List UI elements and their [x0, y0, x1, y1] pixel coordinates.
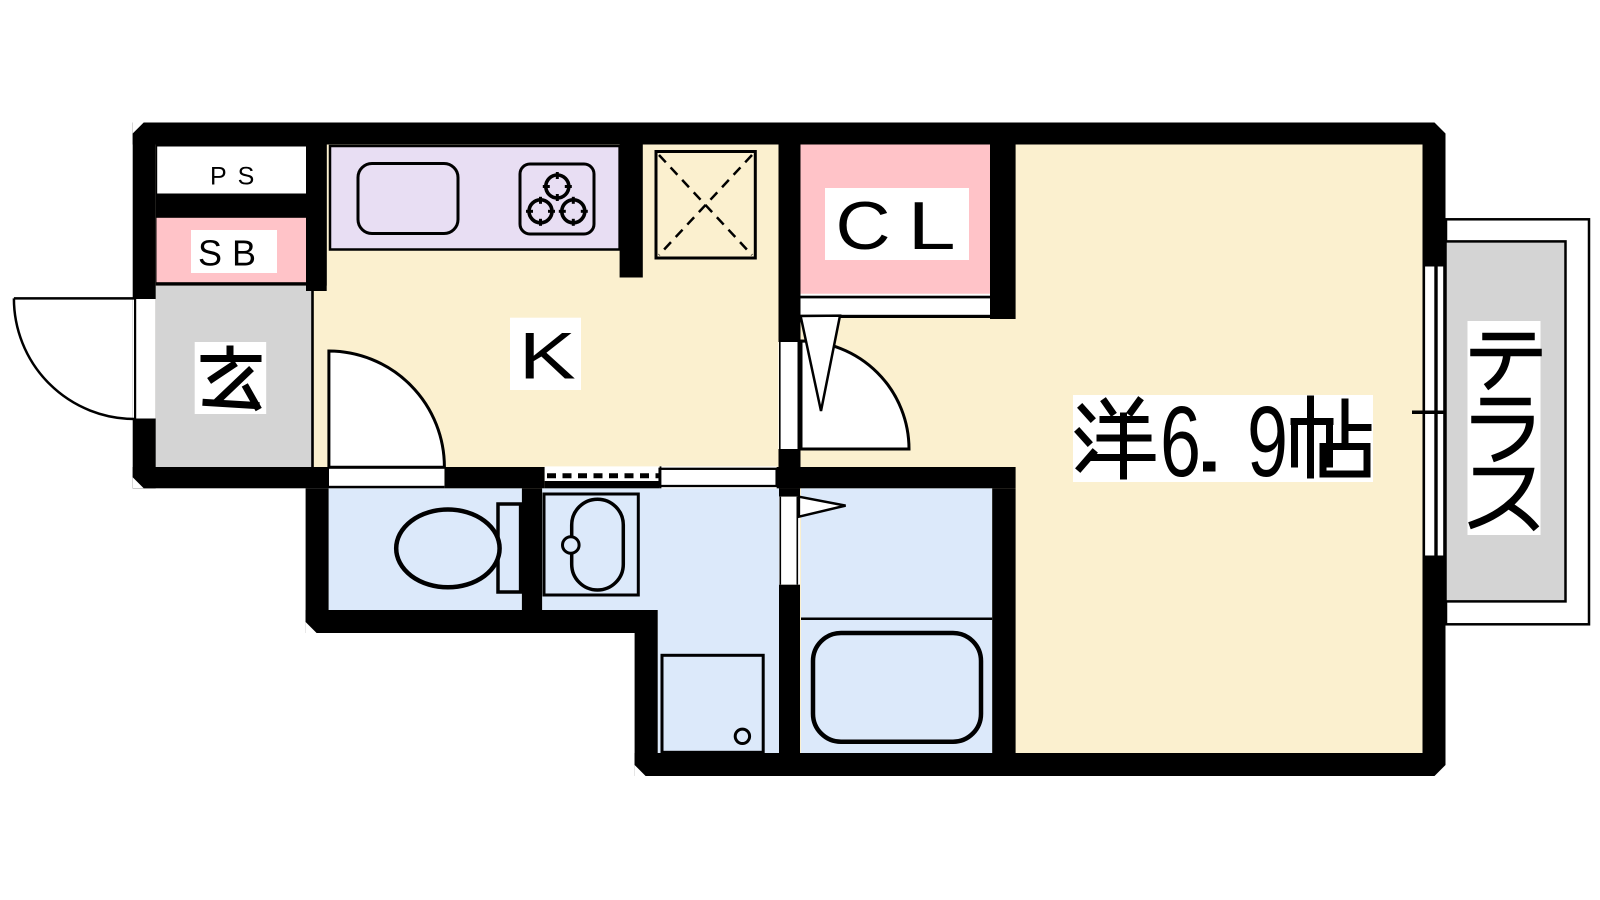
svg-text:6: 6: [1160, 386, 1201, 498]
svg-text:C: C: [836, 188, 891, 264]
svg-text:9: 9: [1247, 386, 1288, 498]
svg-text:K: K: [519, 318, 576, 392]
svg-text:L: L: [908, 188, 956, 264]
svg-text:SB: SB: [198, 233, 266, 274]
svg-text:PS: PS: [210, 163, 265, 191]
